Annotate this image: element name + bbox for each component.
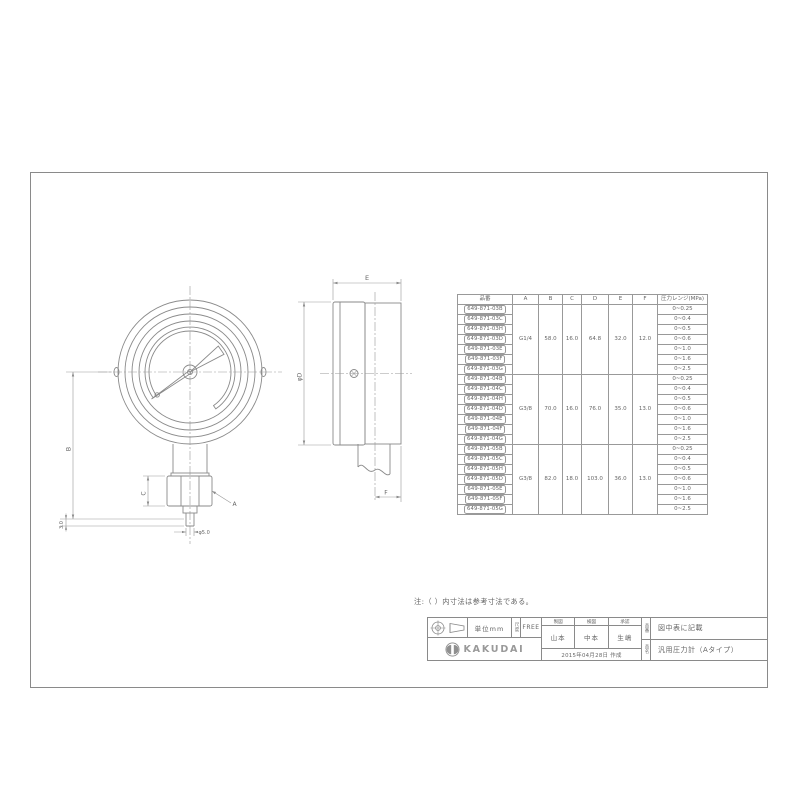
title-block-left: 単位mm 尺度 FREE KAKUDAI [428, 618, 542, 660]
col-header-part: 品番 [458, 295, 513, 305]
part-number: 649-871-03F [465, 355, 506, 364]
part-no-value: 図中表に記載 [651, 618, 767, 640]
dim-e-arrow-left [333, 282, 338, 284]
part-number: 649-871-04B [464, 375, 506, 384]
dim-d-cell: 76.0 [582, 375, 609, 445]
dim-c-cell: 18.0 [563, 445, 582, 515]
scale-cell: 尺度 FREE [512, 618, 541, 637]
part-cell: 649-871-04E [458, 415, 513, 425]
part-cell: 649-871-03E [458, 345, 513, 355]
dim-f-arrow-left [375, 496, 380, 498]
dim-f-cell: 12.0 [633, 305, 658, 375]
part-cell: 649-871-04B [458, 375, 513, 385]
side-stem-break-line [358, 465, 390, 475]
dim-b-cell: 58.0 [539, 305, 563, 375]
dim-d-arrow-bottom [303, 441, 305, 446]
brand-name: KAKUDAI [464, 644, 525, 655]
dim-e-extension-lines [333, 279, 401, 301]
dim-3-label: 3.0 [59, 521, 65, 529]
signature-section: 製図 山本 検図 中本 承認 生嶋 2015年04月28日 作成 [542, 618, 642, 660]
dim-f-cell: 13.0 [633, 445, 658, 515]
range-cell: 0~0.25 [658, 305, 708, 315]
dim-e-cell: 35.0 [609, 375, 633, 445]
part-number: 649-871-04E [464, 415, 505, 424]
value-column: 図中表に記載 汎用圧力計（Aタイプ） [651, 618, 767, 660]
table-row: 649-871-03B G1/4 58.0 16.0 64.8 32.0 12.… [458, 305, 708, 315]
dim-3-arrow-top [65, 515, 67, 519]
dim-b-arrow-bottom [72, 515, 74, 520]
dim-b-cell: 70.0 [539, 375, 563, 445]
range-cell: 0~0.25 [658, 375, 708, 385]
gauge-needle [152, 371, 191, 399]
part-cell: 649-871-05E [458, 485, 513, 495]
leader-a-label: A [233, 501, 238, 508]
part-number: 649-871-03B [464, 305, 506, 314]
part-cell: 649-871-05F [458, 495, 513, 505]
part-cell: 649-871-03D [458, 335, 513, 345]
range-cell: 0~2.5 [658, 505, 708, 515]
sign-role: 検図 [575, 618, 607, 626]
part-cell: 649-871-03F [458, 355, 513, 365]
dim-tip-arrow-left [182, 531, 186, 533]
dim-c-label: C [141, 491, 148, 495]
part-number: 649-871-03G [464, 365, 506, 374]
dim-c-arrow-bottom [147, 502, 149, 507]
spec-table-header-row: 品番 A B C D E F 圧力レンジ(MPa) [458, 295, 708, 305]
dim-d-label: φD [297, 372, 304, 381]
part-no-label: 品番 [642, 618, 650, 640]
part-number: 649-871-03E [464, 345, 505, 354]
part-number: 649-871-05D [464, 475, 506, 484]
leader-a-arrow [212, 491, 216, 494]
dim-c-extension-lines [143, 476, 165, 506]
title-block: 単位mm 尺度 FREE KAKUDAI 製図 山本 [427, 617, 768, 661]
part-cell: 649-871-05G [458, 505, 513, 515]
part-cell: 649-871-05C [458, 455, 513, 465]
sign-name: 生嶋 [609, 626, 641, 648]
part-cell: 649-871-05H [458, 465, 513, 475]
reference-note: 注:（ ）内寸法は参考寸法である。 [414, 597, 533, 607]
col-header-a: A [513, 295, 539, 305]
dim-a-cell: G3/8 [513, 375, 539, 445]
part-cell: 649-871-04D [458, 405, 513, 415]
table-row: 649-871-04B G3/8 70.0 16.0 76.0 35.0 13.… [458, 375, 708, 385]
range-cell: 0~1.0 [658, 485, 708, 495]
dim-b-arrow-top [72, 372, 74, 377]
unit-cell: 単位mm [468, 618, 512, 637]
dim-b-cell: 82.0 [539, 445, 563, 515]
side-stem [358, 444, 390, 474]
sign-role: 承認 [609, 618, 641, 626]
sign-name: 山本 [542, 626, 574, 648]
dim-d-cell: 103.0 [582, 445, 609, 515]
range-cell: 0~1.0 [658, 415, 708, 425]
col-header-b: B [539, 295, 563, 305]
range-cell: 0~0.25 [658, 445, 708, 455]
part-number: 649-871-04H [464, 395, 506, 404]
dim-e-cell: 32.0 [609, 305, 633, 375]
col-header-d: D [582, 295, 609, 305]
range-cell: 0~0.5 [658, 465, 708, 475]
dim-tip-label: φ5.0 [199, 530, 210, 536]
part-number: 649-871-05G [464, 505, 506, 514]
sign-name: 中本 [575, 626, 607, 648]
part-cell: 649-871-03C [458, 315, 513, 325]
dim-c-cell: 16.0 [563, 375, 582, 445]
product-name-label: 品名 [642, 640, 650, 661]
sign-col-draft: 製図 山本 [542, 618, 575, 648]
dim-c-arrow-top [147, 476, 149, 481]
part-cell: 649-871-03H [458, 325, 513, 335]
range-cell: 0~1.6 [658, 495, 708, 505]
col-header-e: E [609, 295, 633, 305]
range-cell: 0~2.5 [658, 365, 708, 375]
product-name-value: 汎用圧力計（Aタイプ） [651, 640, 767, 661]
part-number: 649-871-03D [464, 335, 506, 344]
kakudai-logo-icon [445, 642, 460, 657]
part-number: 649-871-04F [465, 425, 506, 434]
table-row: 649-871-05B G3/8 82.0 18.0 103.0 36.0 13… [458, 445, 708, 455]
part-cell: 649-871-04C [458, 385, 513, 395]
range-cell: 0~1.6 [658, 425, 708, 435]
part-number: 649-871-03C [464, 315, 506, 324]
sign-col-check: 検図 中本 [575, 618, 608, 648]
dim-f-cell: 13.0 [633, 375, 658, 445]
hex-nut [167, 476, 212, 506]
part-number: 649-871-05H [464, 465, 506, 474]
drawing-date: 2015年04月28日 作成 [542, 648, 641, 660]
part-cell: 649-871-04F [458, 425, 513, 435]
gauge-front-view: B 3.0 C A φ5.0 [59, 286, 282, 544]
dim-3-arrow-bottom [65, 526, 67, 530]
range-cell: 0~0.5 [658, 325, 708, 335]
part-number: 649-871-05B [464, 445, 506, 454]
range-cell: 0~0.6 [658, 405, 708, 415]
part-cell: 649-871-05D [458, 475, 513, 485]
projection-symbol-cell [428, 618, 468, 637]
dim-c-cell: 16.0 [563, 305, 582, 375]
drawing-sheet: B 3.0 C A φ5.0 [0, 0, 800, 800]
part-cell: 649-871-05B [458, 445, 513, 455]
part-number: 649-871-05F [465, 495, 506, 504]
part-cell: 649-871-03G [458, 365, 513, 375]
scale-label: 尺度 [512, 618, 521, 637]
dim-f-label: F [384, 490, 388, 497]
part-number: 649-871-04G [464, 435, 506, 444]
range-cell: 0~1.6 [658, 355, 708, 365]
part-number: 649-871-04D [464, 405, 506, 414]
spec-table: 品番 A B C D E F 圧力レンジ(MPa) 649-871-03B G1… [457, 294, 708, 515]
range-cell: 0~2.5 [658, 435, 708, 445]
dim-e-arrow-right [397, 282, 402, 284]
part-number: 649-871-04C [464, 385, 506, 394]
dim-e-cell: 36.0 [609, 445, 633, 515]
dim-b-label: B [65, 447, 73, 451]
dim-tip-arrow-right [194, 531, 198, 533]
gauge-needle-tail [190, 346, 224, 372]
col-header-c: C [563, 295, 582, 305]
dim-d-arrow-top [303, 302, 305, 307]
brand-cell: KAKUDAI [428, 638, 541, 660]
range-cell: 0~0.4 [658, 315, 708, 325]
range-cell: 0~0.4 [658, 385, 708, 395]
part-cell: 649-871-04H [458, 395, 513, 405]
dim-e-label: E [365, 274, 369, 282]
dim-a-cell: G3/8 [513, 445, 539, 515]
part-cell: 649-871-03B [458, 305, 513, 315]
part-number: 649-871-05C [464, 455, 506, 464]
sign-role: 製図 [542, 618, 574, 626]
range-cell: 0~1.0 [658, 345, 708, 355]
range-cell: 0~0.6 [658, 475, 708, 485]
col-header-f: F [633, 295, 658, 305]
range-cell: 0~0.6 [658, 335, 708, 345]
third-angle-projection-icon [430, 620, 466, 636]
col-header-range: 圧力レンジ(MPa) [658, 295, 708, 305]
part-number: 649-871-05E [464, 485, 505, 494]
dim-f-arrow-right [397, 496, 402, 498]
part-number: 649-871-03H [464, 325, 506, 334]
dim-a-cell: G1/4 [513, 305, 539, 375]
sign-col-approve: 承認 生嶋 [609, 618, 641, 648]
scale-value: FREE [521, 618, 541, 637]
gauge-side-view: E φD F [297, 274, 413, 502]
range-cell: 0~0.5 [658, 395, 708, 405]
part-cell: 649-871-04G [458, 435, 513, 445]
dim-d-cell: 64.8 [582, 305, 609, 375]
label-column: 品番 品名 [642, 618, 651, 660]
range-cell: 0~0.4 [658, 455, 708, 465]
